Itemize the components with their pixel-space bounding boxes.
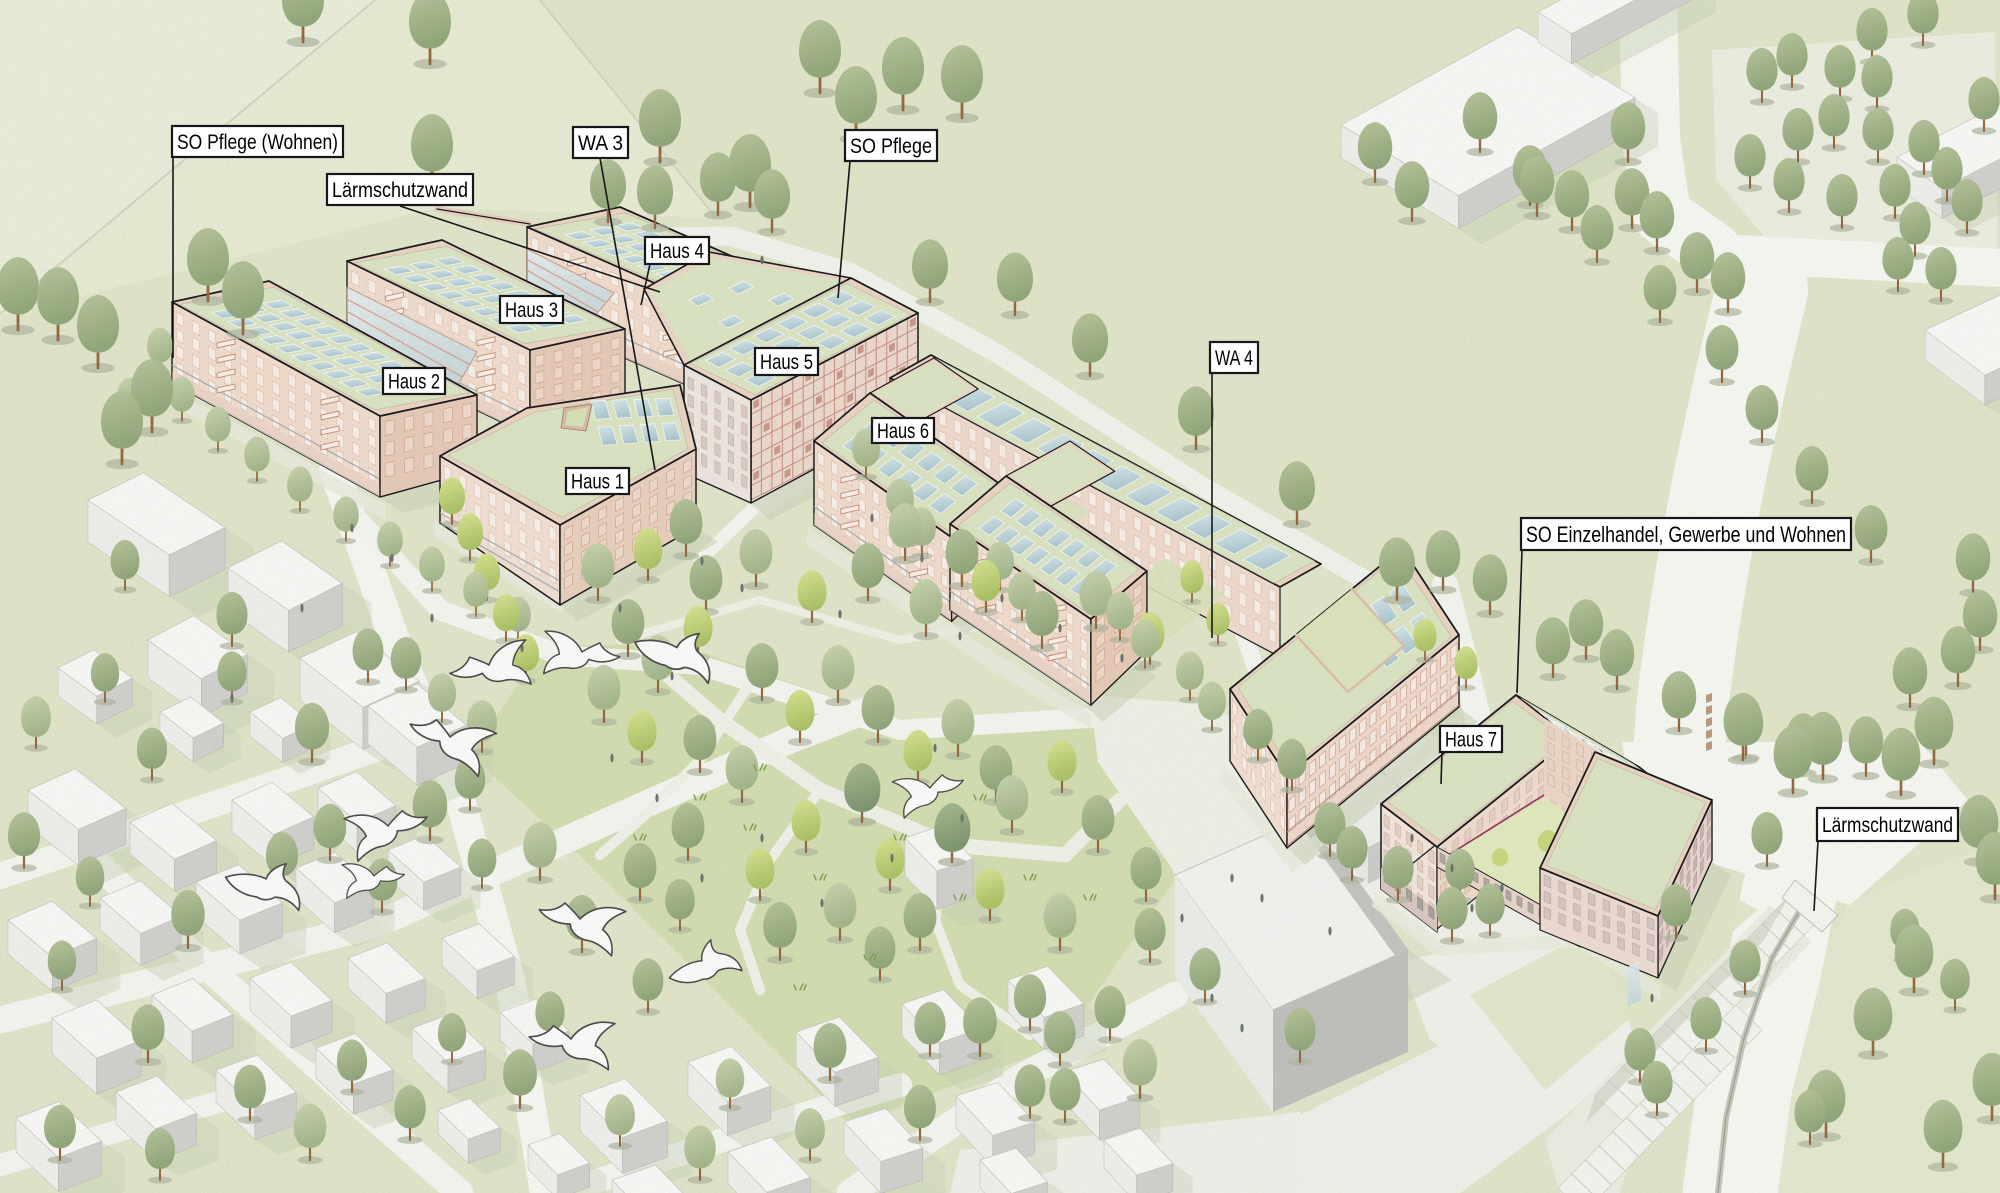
svg-text:SO Pflege: SO Pflege [850, 135, 932, 158]
svg-text:Haus 2: Haus 2 [388, 371, 440, 394]
svg-text:WA 4: WA 4 [1215, 347, 1253, 370]
svg-text:Haus 1: Haus 1 [571, 471, 624, 494]
svg-text:Lärmschutzwand: Lärmschutzwand [332, 179, 468, 202]
svg-text:Haus 3: Haus 3 [505, 299, 558, 322]
svg-text:Haus 4: Haus 4 [650, 240, 704, 263]
svg-text:Lärmschutzwand: Lärmschutzwand [1822, 814, 1953, 837]
svg-text:Haus 5: Haus 5 [760, 351, 813, 374]
svg-text:SO Einzelhandel, Gewerbe und W: SO Einzelhandel, Gewerbe und Wohnen [1526, 522, 1846, 547]
svg-text:SO Pflege (Wohnen): SO Pflege (Wohnen) [177, 131, 338, 154]
svg-text:WA 3: WA 3 [578, 132, 623, 155]
svg-text:Haus 6: Haus 6 [877, 420, 929, 443]
svg-text:Haus 7: Haus 7 [1445, 729, 1497, 752]
